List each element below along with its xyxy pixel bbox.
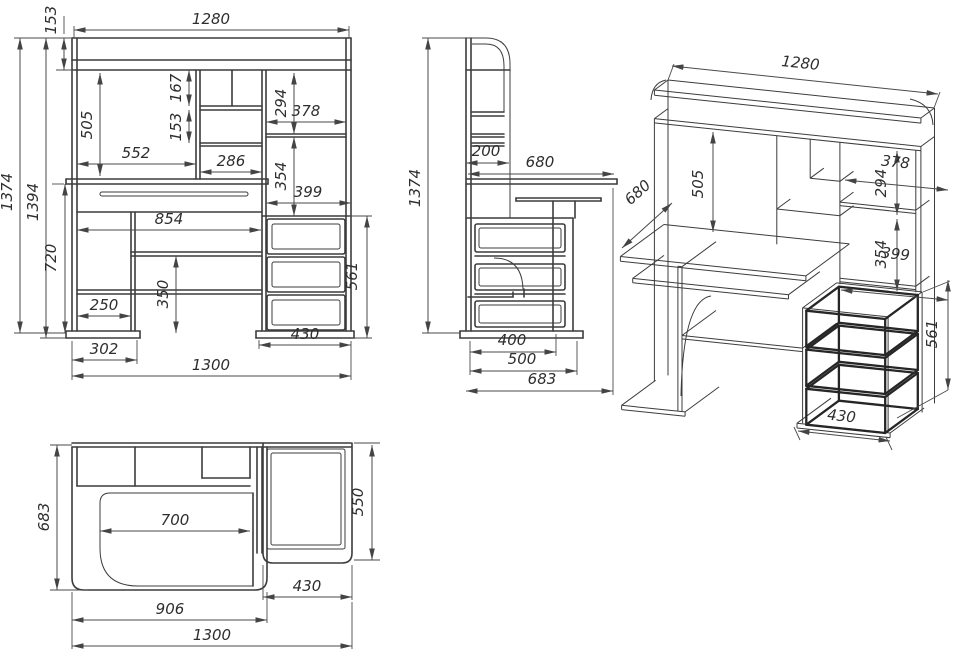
dim-label-iso-pedestal_h: 561 (923, 320, 941, 349)
side-view: 1374200680400500683 (406, 38, 617, 395)
dim-label-front-pedestal_w: 430 (291, 325, 320, 343)
dim-label-front-top_shelf_h: 153 (42, 6, 60, 35)
desk-blueprint: 1280153137413945051671535522862943783543… (0, 0, 957, 660)
dim-label-iso-side_w_2: 399 (880, 244, 910, 265)
dim-label-front-drawer_front_w: 854 (155, 210, 184, 228)
dim-label-side-pedestal_depth: 500 (508, 350, 537, 368)
blueprint-page: 1280153137413945051671535522862943783543… (0, 0, 957, 660)
dim-label-plan-total_depth: 683 (35, 503, 53, 532)
dim-label-front-under_shelf_h: 350 (154, 280, 172, 309)
dim-label-plan-desktop_w: 906 (156, 600, 185, 618)
dim-label-front-cubby_gap_2: 153 (167, 113, 185, 142)
dim-label-side-total_depth: 683 (528, 370, 557, 388)
dim-label-front-left_plinth_w: 302 (90, 340, 119, 358)
dim-label-front-height_overall: 1394 (24, 183, 42, 221)
dim-label-plan-base_w: 1300 (193, 626, 231, 644)
dim-label-front-knee_opening_w: 250 (90, 296, 119, 314)
dim-label-side-desktop_depth: 680 (526, 153, 555, 171)
dim-label-front-width_top: 1280 (192, 10, 230, 28)
plan-view: 6837005504309061300 (35, 443, 380, 649)
dim-label-plan-pedestal_depth: 550 (349, 488, 367, 517)
dim-label-iso-width_top: 1280 (781, 52, 821, 74)
dim-label-front-side_gap_2: 354 (272, 162, 290, 191)
dim-label-iso-side_w: 378 (880, 152, 910, 173)
dim-label-front-pedestal_h: 561 (343, 262, 361, 291)
dim-label-iso-hutch_h: 505 (689, 170, 707, 199)
dim-label-plan-pedestal_w: 430 (293, 577, 322, 595)
dim-label-front-side_w: 378 (292, 102, 321, 120)
dim-label-front-side_w_2: 399 (294, 183, 323, 201)
dim-label-side-height_total: 1374 (406, 169, 424, 207)
dim-label-front-height_total: 1374 (0, 173, 16, 211)
dim-label-front-side_gap_1: 294 (272, 89, 290, 118)
dim-label-side-back_depth: 200 (472, 142, 501, 160)
dim-label-iso-desktop_depth: 680 (621, 176, 654, 209)
dim-label-front-base_w: 1300 (192, 356, 230, 374)
front-view: 1280153137413945051671535522862943783543… (0, 6, 372, 380)
dim-label-front-cubby_w: 286 (217, 152, 246, 170)
dim-label-side-drawer_depth: 400 (498, 331, 527, 349)
dim-label-plan-tray_w: 700 (161, 511, 190, 529)
dim-line (622, 203, 672, 248)
dim-label-front-desk_h: 720 (42, 244, 60, 273)
dim-label-front-opening_w: 552 (122, 144, 151, 162)
dim-label-front-hutch_h: 505 (78, 111, 96, 140)
dim-label-front-cubby_gap_1: 167 (167, 73, 185, 102)
dim-label-iso-pedestal_w: 430 (826, 406, 856, 427)
isometric-view: 1280505294378680354399561430 (620, 52, 950, 450)
